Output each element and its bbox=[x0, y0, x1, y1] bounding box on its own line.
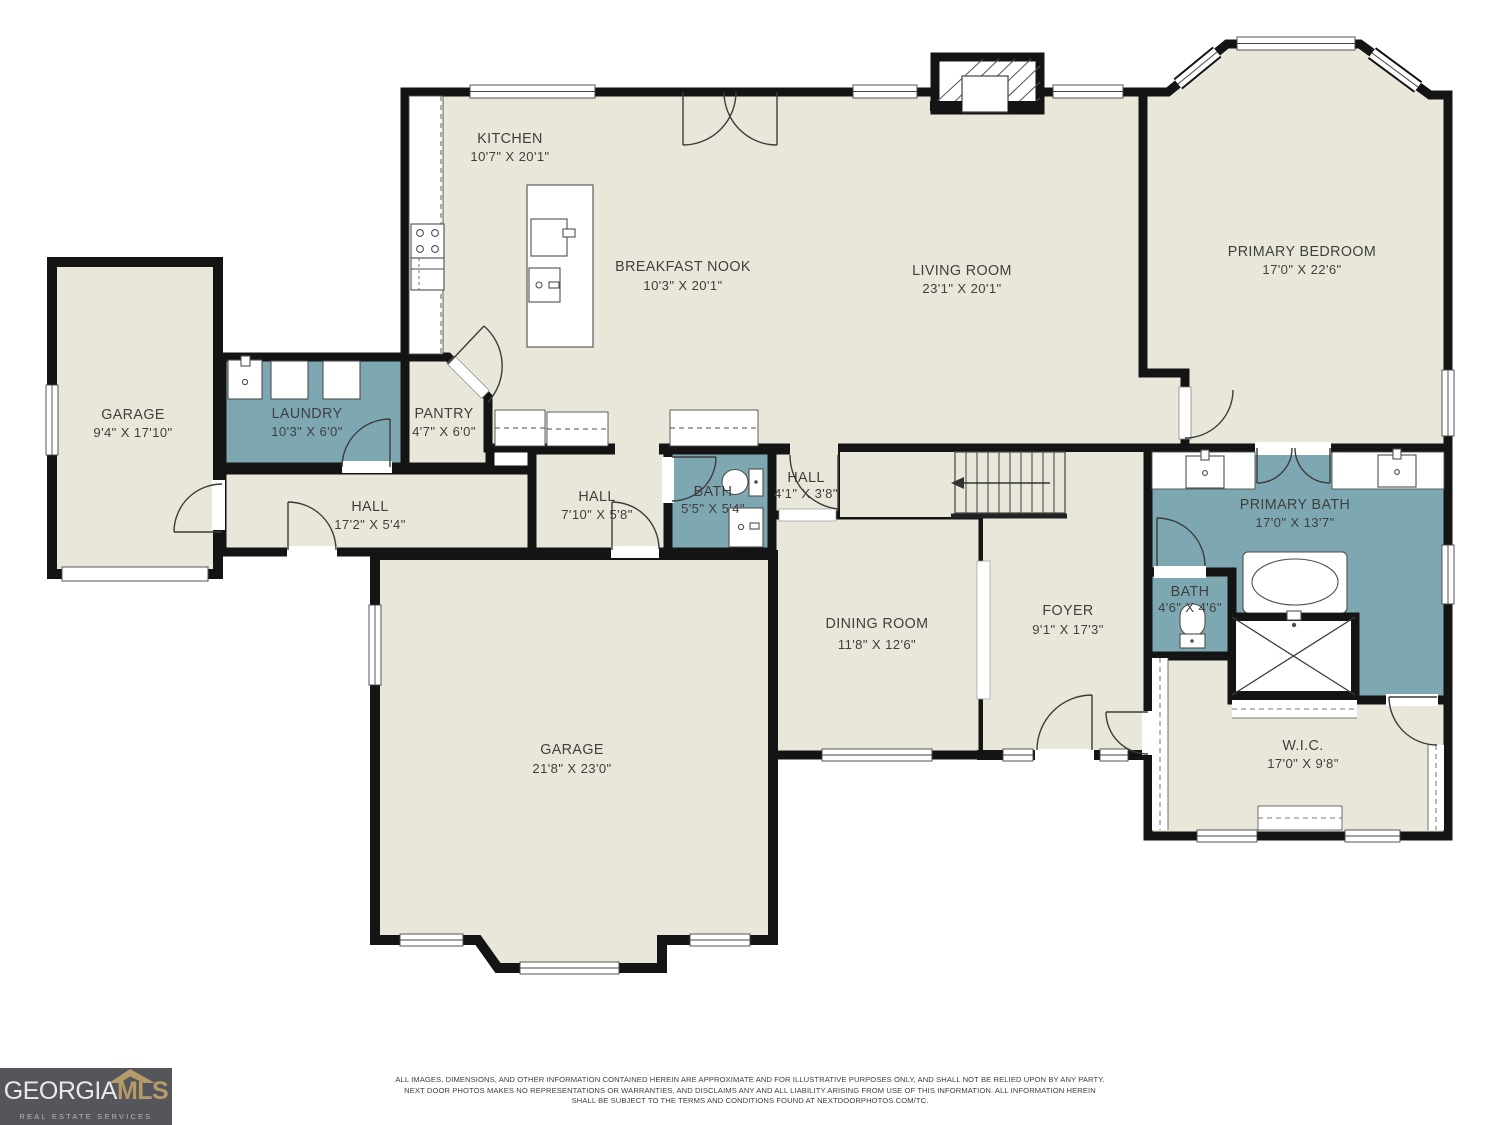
window bbox=[1237, 37, 1355, 50]
room-label-primary-bath: PRIMARY BATH bbox=[1240, 497, 1350, 513]
room-dims-dining-room: 11'8" X 12'6" bbox=[838, 637, 916, 652]
window bbox=[470, 85, 595, 98]
disclaimer-line-3: SHALL BE SUBJECT TO THE TERMS AND CONDIT… bbox=[0, 1096, 1500, 1107]
room-shapes bbox=[52, 44, 1448, 968]
opening-bath-french-doors bbox=[1255, 442, 1331, 455]
window bbox=[1053, 85, 1123, 98]
bathtub-icon bbox=[1243, 552, 1347, 613]
window-sidelight bbox=[1100, 749, 1128, 761]
room-dims-kitchen: 10'7" X 20'1" bbox=[470, 149, 549, 164]
room-dining-floor bbox=[772, 515, 983, 755]
opening-hall-west-ext-door bbox=[287, 546, 337, 558]
room-dims-wic: 17'0" X 9'8" bbox=[1267, 756, 1339, 771]
room-dims-garage-main: 21'8" X 23'0" bbox=[532, 761, 611, 776]
window bbox=[520, 962, 619, 974]
stove-icon bbox=[411, 224, 444, 258]
garage-door-panel bbox=[62, 567, 208, 581]
room-dims-primary-bath: 17'0" X 13'7" bbox=[1255, 515, 1334, 530]
room-label-kitchen: KITCHEN bbox=[477, 131, 543, 147]
room-label-hall-west: HALL bbox=[351, 499, 388, 515]
room-label-bath-toilet: BATH bbox=[1171, 584, 1210, 600]
room-dims-hall-west: 17'2" X 5'4" bbox=[334, 517, 406, 532]
logo-tagline-text: REAL ESTATE SERVICES bbox=[0, 1112, 172, 1121]
room-label-wic: W.I.C. bbox=[1282, 738, 1323, 754]
sink-icon bbox=[1378, 455, 1416, 487]
room-label-laundry: LAUNDRY bbox=[272, 406, 343, 422]
floorplan-page: KITCHEN 10'7" X 20'1" BREAKFAST NOOK 10'… bbox=[0, 0, 1500, 1125]
window bbox=[1345, 830, 1400, 842]
opening-wic-bath-door bbox=[1386, 694, 1438, 706]
room-label-living-room: LIVING ROOM bbox=[912, 263, 1012, 279]
room-label-garage-main: GARAGE bbox=[540, 742, 604, 758]
room-label-hall-center: HALL bbox=[578, 489, 615, 505]
room-dims-garage-left: 9'4" X 17'10" bbox=[93, 425, 172, 440]
disclaimer-line-2: NEXT DOOR PHOTOS MAKES NO REPRESENTATION… bbox=[0, 1086, 1500, 1097]
window bbox=[46, 385, 58, 455]
opening-bedroom-door bbox=[1179, 387, 1191, 439]
oven-icon bbox=[411, 258, 444, 290]
opening-laundry-door bbox=[342, 461, 392, 473]
sink-icon bbox=[1186, 456, 1224, 488]
shower-icon bbox=[1232, 611, 1355, 695]
opening-hall-small-door bbox=[790, 442, 838, 455]
room-label-foyer: FOYER bbox=[1042, 603, 1093, 619]
primary-bath-vanity-left bbox=[1152, 450, 1255, 489]
kitchen-island bbox=[527, 185, 593, 347]
window bbox=[853, 85, 917, 98]
room-dims-primary-bedroom: 17'0" X 22'6" bbox=[1262, 262, 1341, 277]
room-label-garage-left: GARAGE bbox=[101, 407, 165, 423]
stairs bbox=[951, 452, 1067, 516]
window-sidelight bbox=[1003, 749, 1033, 761]
room-dims-laundry: 10'3" X 6'0" bbox=[271, 424, 343, 439]
sink-icon bbox=[531, 219, 567, 256]
room-dims-hall-center: 7'10" X 5'8" bbox=[561, 507, 633, 522]
washer-icon bbox=[271, 361, 308, 399]
opening-hall-center bbox=[615, 442, 659, 456]
window bbox=[1442, 370, 1454, 436]
dryer-icon bbox=[323, 361, 360, 399]
room-label-hall-small: HALL bbox=[787, 470, 824, 486]
window bbox=[369, 605, 381, 685]
window bbox=[1197, 830, 1257, 842]
opening-hall-center-ext-door bbox=[611, 546, 659, 558]
opening-bath-toilet-door bbox=[1154, 566, 1206, 578]
window bbox=[1442, 545, 1454, 604]
room-dims-hall-small: 4'1" X 3'8" bbox=[774, 486, 838, 501]
room-dims-foyer: 9'1" X 17'3" bbox=[1032, 622, 1104, 637]
room-label-bath-hall: BATH bbox=[694, 484, 733, 500]
disclaimer-line-1: ALL IMAGES, DIMENSIONS, AND OTHER INFORM… bbox=[0, 1075, 1500, 1086]
primary-bath-vanity-right bbox=[1332, 449, 1444, 489]
room-dims-bath-hall: 5'5" X 5'4" bbox=[681, 501, 745, 516]
room-dims-living-room: 23'1" X 20'1" bbox=[922, 281, 1001, 296]
room-dims-bath-toilet: 4'6" X 4'6" bbox=[1158, 600, 1222, 615]
fireplace-icon bbox=[930, 57, 1042, 112]
laundry-sink-icon bbox=[228, 356, 262, 399]
room-dims-pantry: 4'7" X 6'0" bbox=[412, 424, 476, 439]
opening-garage-left-door bbox=[212, 480, 225, 530]
window bbox=[690, 934, 750, 946]
floorplan-drawing: KITCHEN 10'7" X 20'1" BREAKFAST NOOK 10'… bbox=[0, 0, 1500, 1125]
opening-bath-hall-door bbox=[662, 457, 674, 503]
room-label-dining-room: DINING ROOM bbox=[826, 616, 929, 632]
room-label-breakfast-nook: BREAKFAST NOOK bbox=[615, 259, 751, 275]
disclaimer: ALL IMAGES, DIMENSIONS, AND OTHER INFORM… bbox=[0, 1075, 1500, 1107]
cased-opening-foyer bbox=[977, 561, 990, 699]
room-label-pantry: PANTRY bbox=[414, 406, 473, 422]
window bbox=[822, 749, 932, 761]
opening-front-door bbox=[1035, 749, 1094, 761]
window bbox=[400, 934, 463, 946]
room-dims-breakfast-nook: 10'3" X 20'1" bbox=[643, 278, 722, 293]
room-label-primary-bedroom: PRIMARY BEDROOM bbox=[1228, 244, 1376, 260]
cased-opening-dining bbox=[779, 509, 836, 521]
